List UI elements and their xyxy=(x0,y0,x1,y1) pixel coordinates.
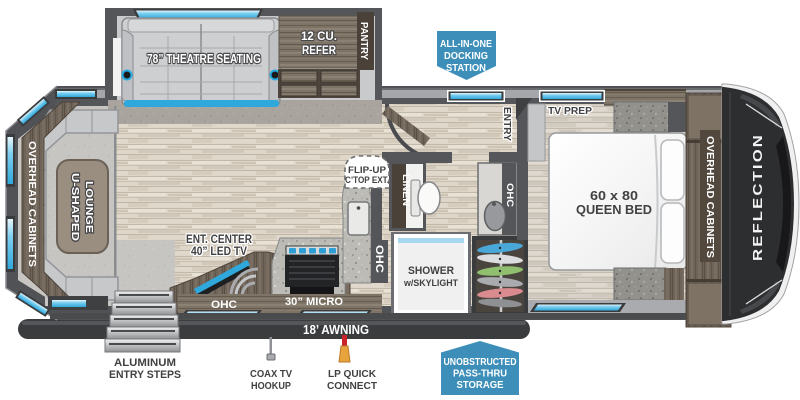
svg-text:TV PREP: TV PREP xyxy=(548,106,592,117)
svg-text:12 CU.: 12 CU. xyxy=(301,31,337,43)
svg-text:U-SHAPED: U-SHAPED xyxy=(69,173,80,241)
svg-text:60 x 80: 60 x 80 xyxy=(590,189,638,203)
svg-text:CONNECT: CONNECT xyxy=(327,380,378,392)
svg-text:LOUNGE: LOUNGE xyxy=(83,181,94,233)
svg-text:REFER: REFER xyxy=(302,45,337,57)
svg-text:18’ AWNING: 18’ AWNING xyxy=(303,323,369,337)
svg-text:SHOWER: SHOWER xyxy=(408,265,454,277)
svg-text:ENTRY STEPS: ENTRY STEPS xyxy=(109,369,181,381)
svg-text:40” LED TV: 40” LED TV xyxy=(191,246,247,258)
svg-text:OHC: OHC xyxy=(211,299,237,311)
svg-text:PASS-THRU: PASS-THRU xyxy=(453,368,507,380)
svg-text:PANTRY: PANTRY xyxy=(358,22,369,60)
svg-text:REFLECTION: REFLECTION xyxy=(751,133,765,261)
svg-text:78” THEATRE SEATING: 78” THEATRE SEATING xyxy=(147,52,261,66)
svg-text:ENTRY: ENTRY xyxy=(501,107,512,141)
svg-text:STATION: STATION xyxy=(446,62,486,74)
svg-text:QUEEN BED: QUEEN BED xyxy=(576,203,652,217)
svg-text:ALUMINUM: ALUMINUM xyxy=(114,357,176,369)
svg-text:LP QUICK: LP QUICK xyxy=(328,368,376,380)
svg-text:HOOKUP: HOOKUP xyxy=(251,380,291,392)
svg-text:UNOBSTRUCTED: UNOBSTRUCTED xyxy=(444,356,517,368)
svg-text:STORAGE: STORAGE xyxy=(457,379,504,391)
svg-text:C’TOP EXT.: C’TOP EXT. xyxy=(345,175,389,186)
svg-text:OHC: OHC xyxy=(373,245,385,273)
svg-text:OVERHEAD CABINETS: OVERHEAD CABINETS xyxy=(26,141,38,267)
svg-text:ALL-IN-ONE: ALL-IN-ONE xyxy=(440,38,492,50)
svg-text:OHC: OHC xyxy=(504,183,515,207)
svg-text:DOCKING: DOCKING xyxy=(444,50,488,62)
svg-text:30” MICRO: 30” MICRO xyxy=(285,296,343,308)
svg-text:w/SKYLIGHT: w/SKYLIGHT xyxy=(403,278,458,289)
svg-text:COAX TV: COAX TV xyxy=(250,368,292,380)
svg-text:OVERHEAD CABINETS: OVERHEAD CABINETS xyxy=(704,136,715,258)
svg-text:LINEN: LINEN xyxy=(400,174,411,206)
svg-text:ENT. CENTER: ENT. CENTER xyxy=(186,234,253,246)
